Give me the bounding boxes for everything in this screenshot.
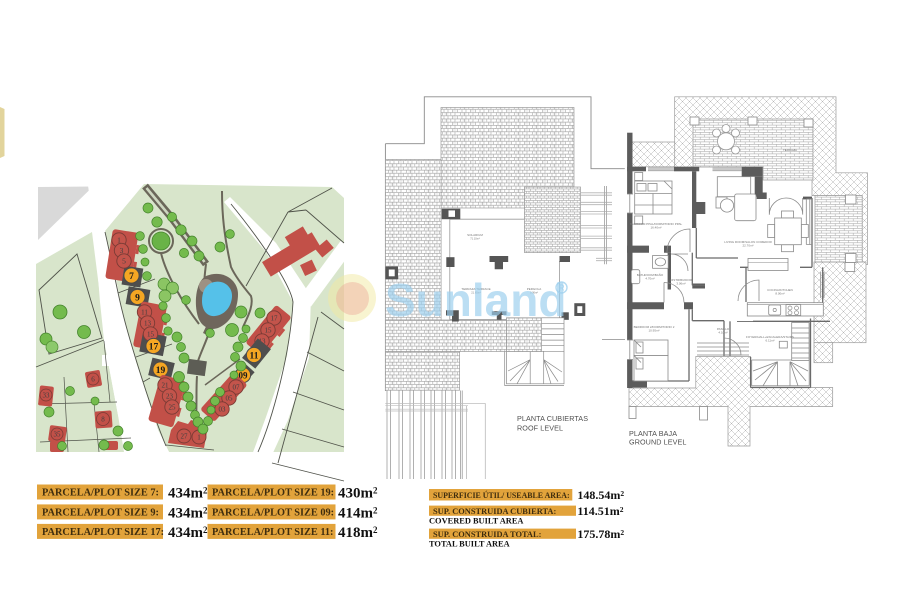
svg-text:Sunland: Sunland	[385, 274, 566, 326]
svg-text:8: 8	[101, 416, 105, 424]
svg-text:430m2: 430m2	[338, 486, 378, 502]
svg-text:418m2: 418m2	[338, 525, 378, 541]
svg-text:PARCELA/PLOT SIZE 11:: PARCELA/PLOT SIZE 11:	[212, 527, 334, 538]
svg-text:148.54m2: 148.54m2	[577, 488, 624, 502]
svg-text:TOTAL BUILT AREA: TOTAL BUILT AREA	[429, 540, 510, 549]
svg-text:PLANTA CUBIERTAS: PLANTA CUBIERTAS	[517, 414, 588, 423]
svg-text:R: R	[559, 284, 565, 293]
svg-text:10.95m²: 10.95m²	[648, 329, 659, 333]
svg-text:15: 15	[265, 327, 273, 335]
svg-text:05: 05	[226, 395, 234, 403]
svg-text:1: 1	[197, 434, 201, 442]
svg-text:8.00m²: 8.00m²	[775, 292, 784, 296]
svg-text:35: 35	[54, 431, 62, 439]
svg-text:71.10m²: 71.10m²	[470, 237, 480, 241]
svg-text:COVERED BUILT AREA: COVERED BUILT AREA	[429, 517, 523, 526]
svg-text:07: 07	[233, 384, 241, 392]
svg-text:3.06m²: 3.06m²	[676, 282, 685, 286]
svg-text:SOLARIUM: SOLARIUM	[467, 233, 483, 237]
svg-text:434m2: 434m2	[168, 505, 208, 521]
svg-text:PARCELA/PLOT SIZE 7:: PARCELA/PLOT SIZE 7:	[42, 488, 159, 499]
svg-text:PARCELA/PLOT SIZE 19:: PARCELA/PLOT SIZE 19:	[212, 488, 334, 499]
svg-text:13: 13	[144, 320, 152, 328]
svg-text:434m2: 434m2	[168, 486, 208, 502]
svg-text:6.11m²: 6.11m²	[765, 339, 774, 343]
svg-text:17: 17	[149, 343, 159, 353]
svg-text:7: 7	[129, 272, 134, 282]
svg-text:19: 19	[156, 366, 166, 376]
svg-text:17: 17	[271, 315, 279, 323]
svg-text:SUP. CONSTRUIDA CUBIERTA:: SUP. CONSTRUIDA CUBIERTA:	[433, 507, 556, 516]
svg-text:SUPERFICIE ÚTIL/ USEABLE AREA:: SUPERFICIE ÚTIL/ USEABLE AREA:	[433, 490, 570, 500]
svg-text:414m2: 414m2	[338, 505, 378, 521]
svg-text:GROUND LEVEL: GROUND LEVEL	[629, 438, 687, 447]
svg-text:16.40m²: 16.40m²	[650, 226, 661, 230]
svg-text:5: 5	[122, 257, 126, 266]
svg-text:23: 23	[166, 393, 174, 401]
svg-text:4.70m²: 4.70m²	[645, 277, 654, 281]
svg-text:TERRAZA: TERRAZA	[783, 148, 797, 152]
svg-text:ROOF LEVEL: ROOF LEVEL	[517, 424, 563, 433]
svg-text:PARCELA/PLOT SIZE 09:: PARCELA/PLOT SIZE 09:	[212, 507, 334, 518]
svg-text:27: 27	[181, 433, 189, 441]
svg-text:9: 9	[135, 294, 140, 304]
svg-text:25: 25	[169, 404, 177, 412]
svg-text:SUP. CONSTRUIDA TOTAL:: SUP. CONSTRUIDA TOTAL:	[433, 530, 542, 539]
svg-text:1: 1	[117, 236, 121, 245]
svg-text:03: 03	[219, 406, 227, 414]
svg-text:PARCELA/PLOT SIZE 9:: PARCELA/PLOT SIZE 9:	[42, 507, 159, 518]
svg-text:175.78m2: 175.78m2	[577, 527, 624, 541]
svg-text:11: 11	[141, 309, 148, 317]
svg-text:11: 11	[250, 352, 259, 362]
svg-text:21: 21	[162, 382, 170, 390]
svg-text:6: 6	[91, 376, 95, 384]
svg-text:114.51m2: 114.51m2	[577, 504, 623, 518]
svg-text:PARCELA/PLOT SIZE 17:: PARCELA/PLOT SIZE 17:	[42, 527, 164, 538]
svg-text:4.10m²: 4.10m²	[718, 331, 727, 335]
svg-text:15: 15	[147, 331, 155, 339]
svg-text:3: 3	[120, 246, 124, 255]
svg-text:22.70m²: 22.70m²	[742, 244, 753, 248]
svg-text:434m2: 434m2	[168, 525, 208, 541]
svg-text:33: 33	[43, 392, 51, 400]
